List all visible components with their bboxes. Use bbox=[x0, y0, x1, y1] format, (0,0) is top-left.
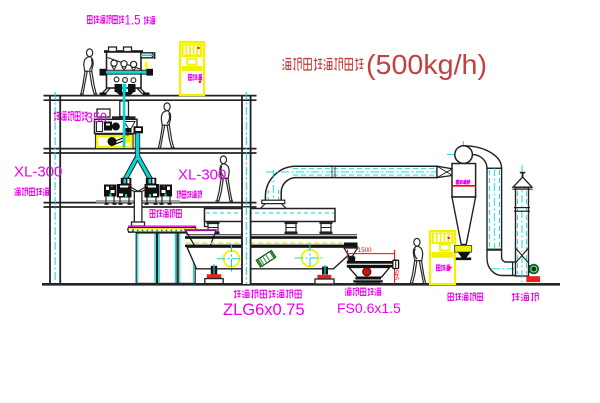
svg-text:350: 350 bbox=[86, 110, 107, 127]
svg-text:XL-300: XL-300 bbox=[178, 167, 226, 184]
svg-text:(500kg/h): (500kg/h) bbox=[366, 49, 487, 80]
svg-text:1.5: 1.5 bbox=[125, 13, 141, 28]
svg-text:XL-300: XL-300 bbox=[14, 164, 62, 181]
svg-text:FS0.6x1.5: FS0.6x1.5 bbox=[337, 300, 401, 316]
svg-text:545: 545 bbox=[394, 269, 401, 280]
svg-text:1500: 1500 bbox=[358, 247, 372, 254]
svg-text:ZLG6x0.75: ZLG6x0.75 bbox=[223, 301, 305, 319]
